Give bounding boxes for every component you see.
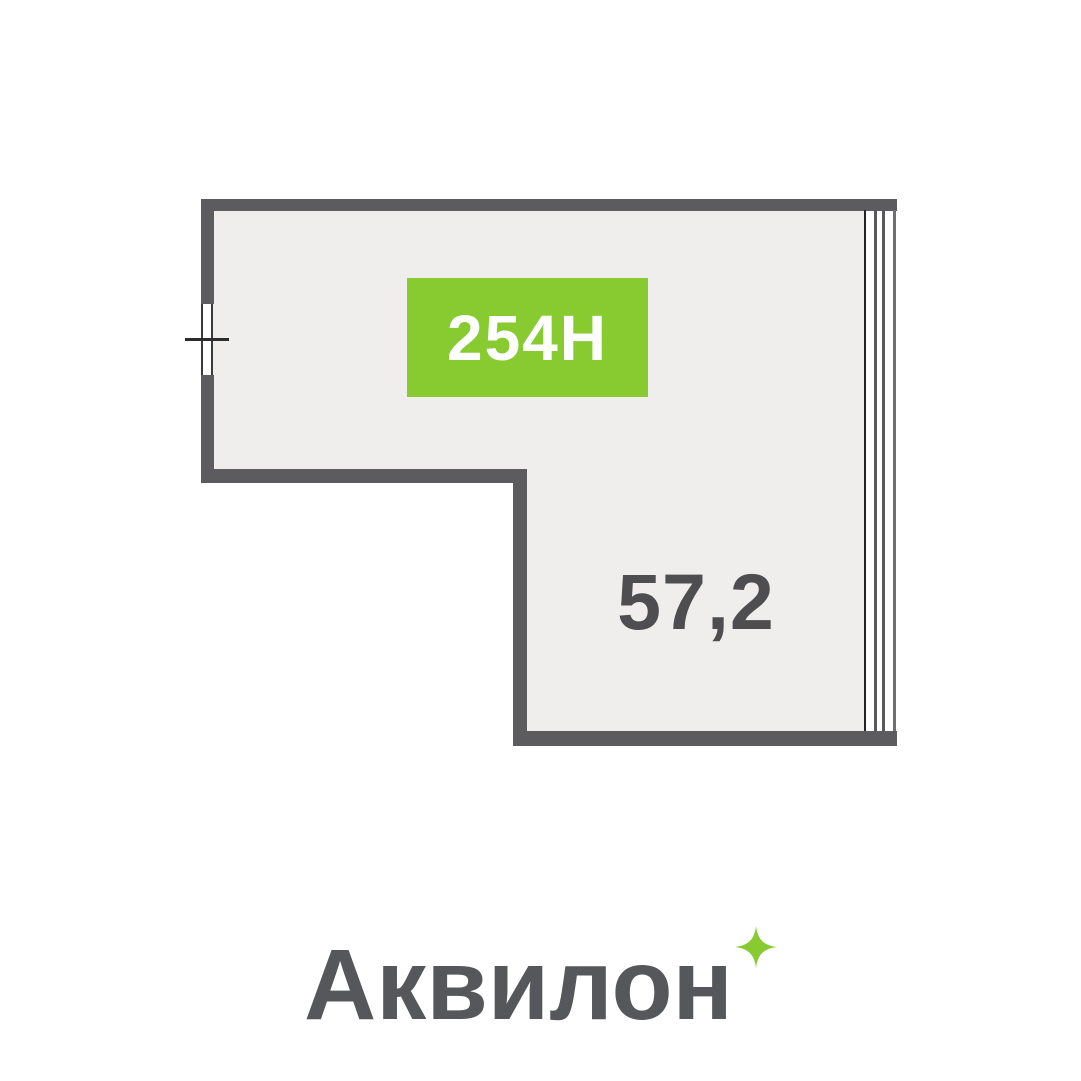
wall-bottom — [513, 731, 897, 746]
brand-logo: Аквилон — [0, 935, 1081, 1035]
wall-notch-bottom — [201, 469, 527, 483]
sparkle-icon — [735, 925, 777, 969]
unit-number-label: 254Н — [447, 301, 608, 375]
brand-name: Аквилон — [304, 935, 733, 1035]
glazing-line-inner — [864, 210, 866, 731]
floor-plan-page: 254Н 57,2 Аквилон — [0, 0, 1081, 1081]
unit-number-badge[interactable]: 254Н — [407, 278, 648, 397]
wall-top — [201, 199, 897, 211]
area-value: 57,2 — [556, 562, 836, 641]
wall-step — [513, 469, 527, 746]
glazing-line-outer — [893, 210, 896, 731]
glazing-line-mid-1 — [874, 210, 877, 731]
glazing-line-mid-2 — [882, 210, 885, 731]
axis-cross-line — [185, 338, 229, 341]
wall-left-upper — [201, 199, 214, 304]
wall-left-lower — [201, 375, 214, 483]
